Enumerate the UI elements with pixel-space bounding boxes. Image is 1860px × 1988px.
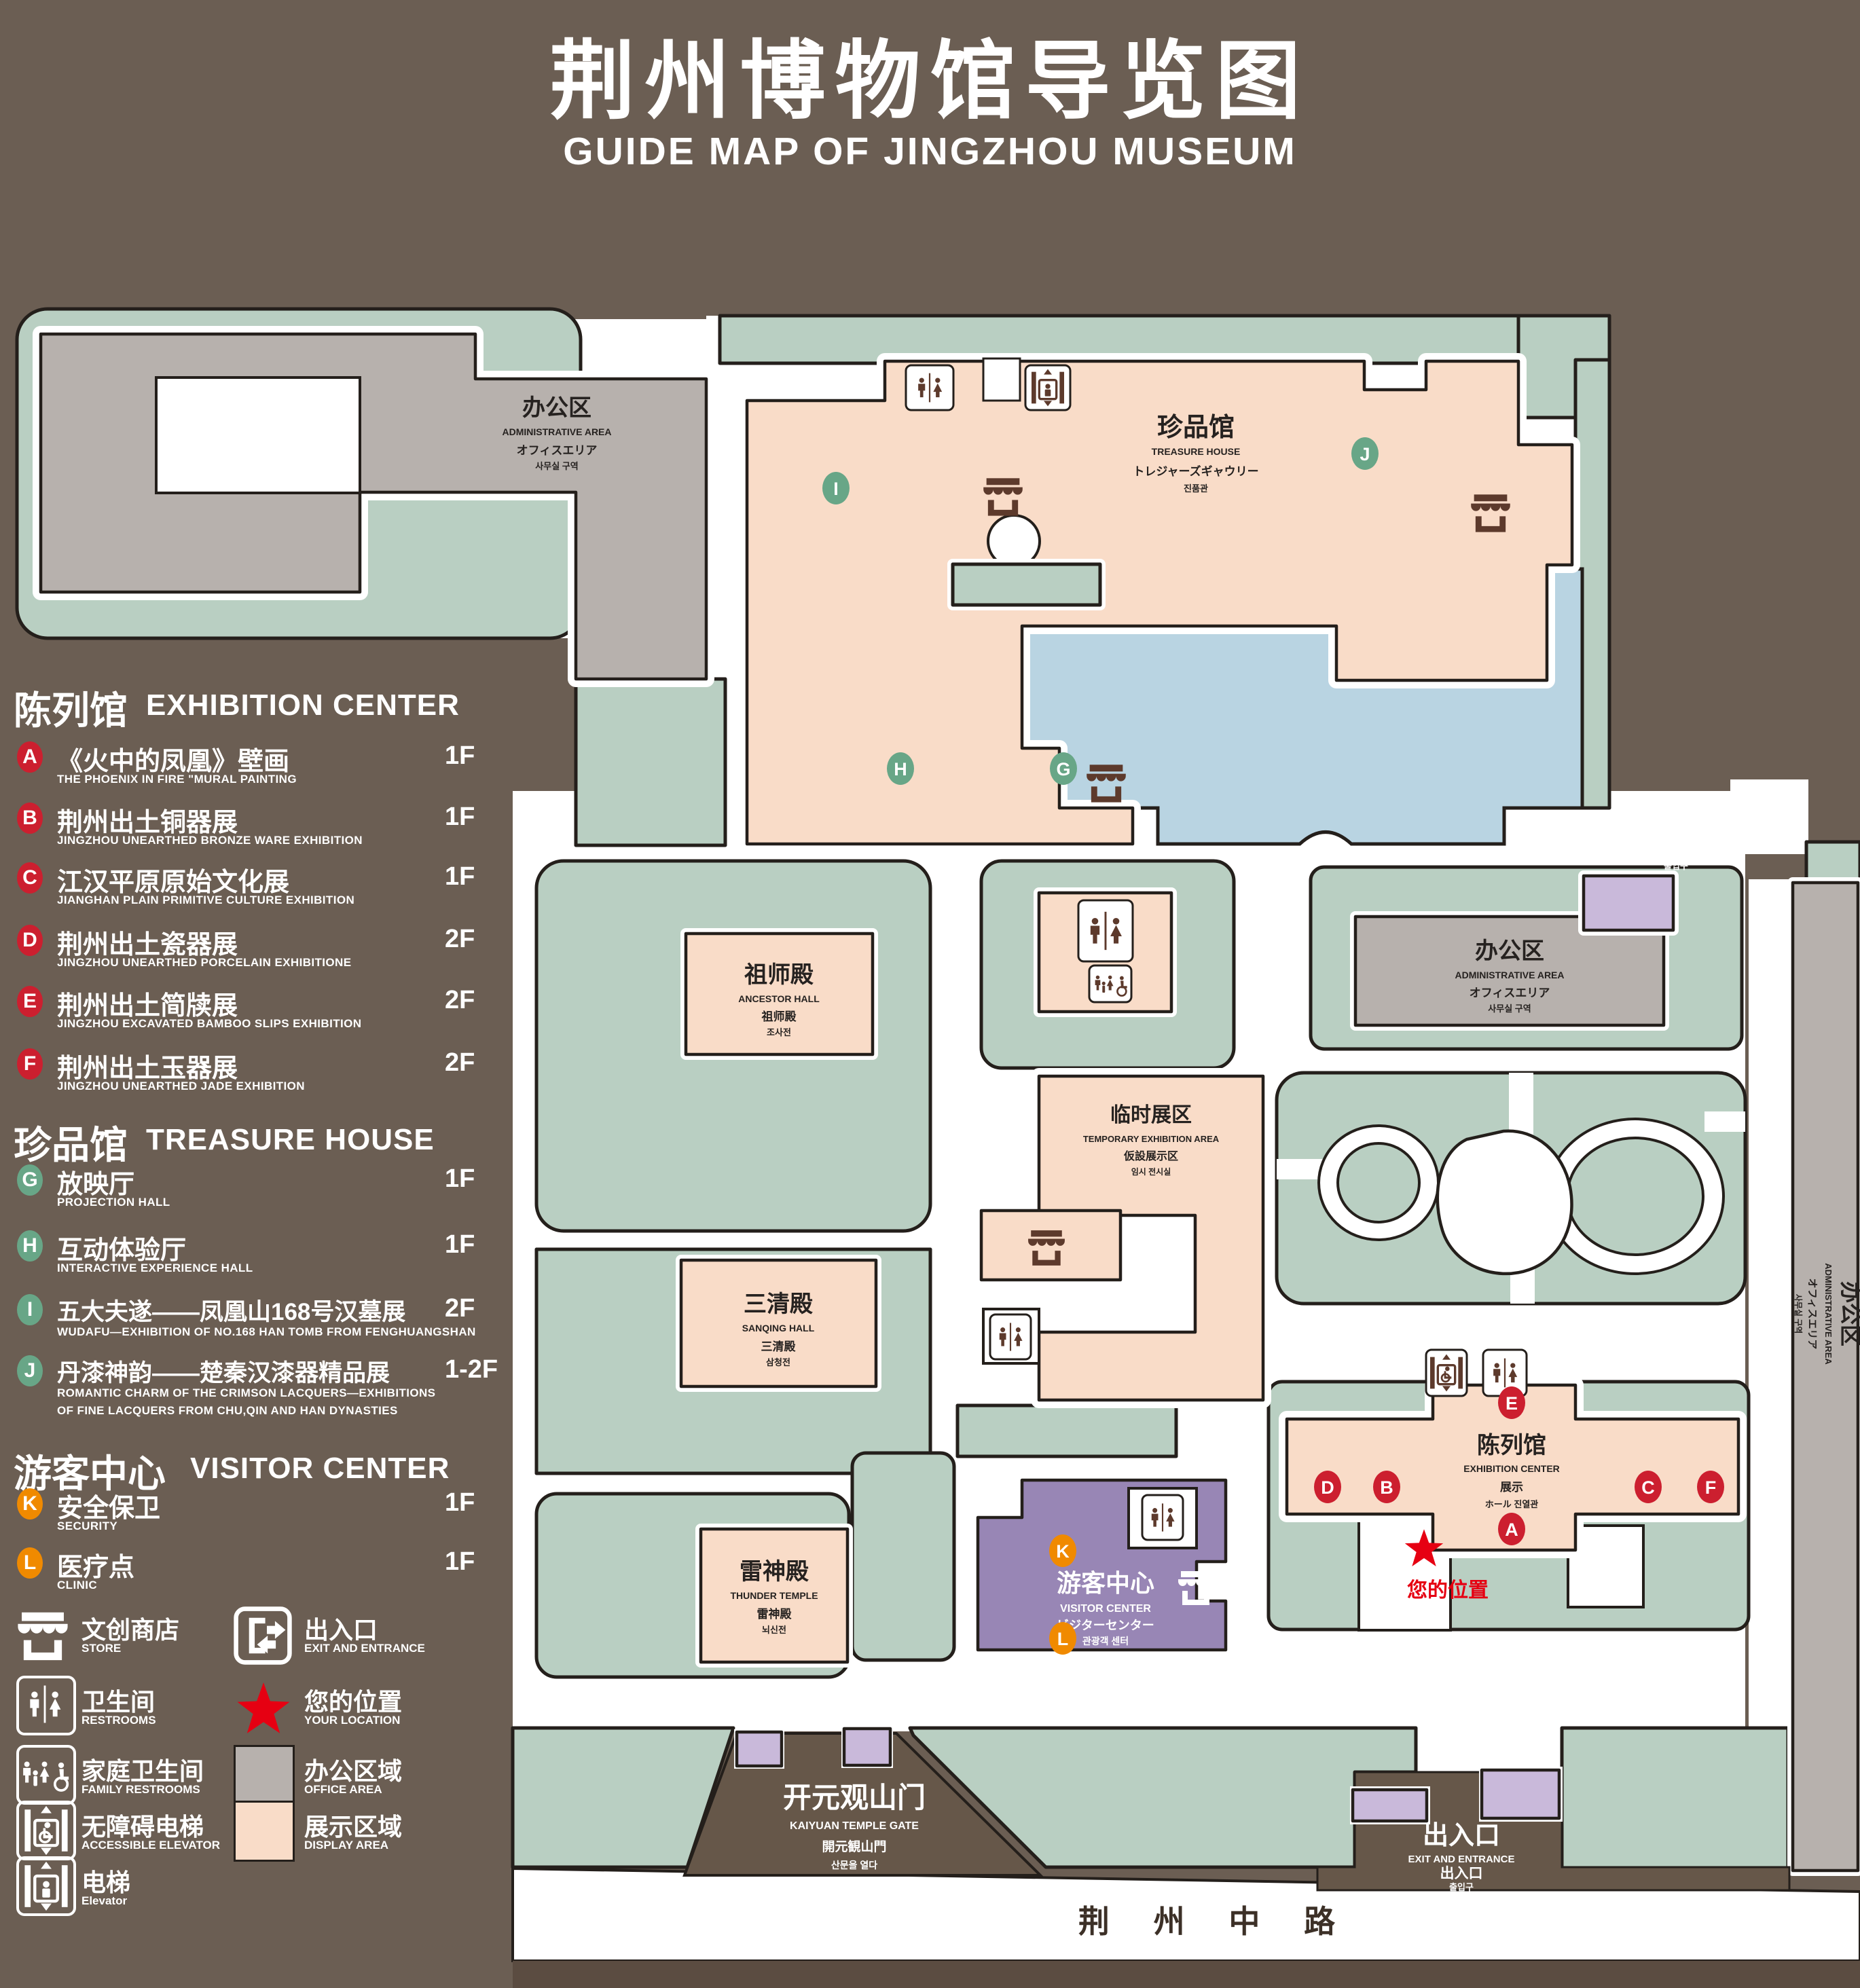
marker-l: L (1049, 1622, 1076, 1655)
legend-item-l: L 医疗点 CLINIC 1F (0, 1547, 503, 1606)
restroom-icon (1078, 900, 1133, 961)
marker-a: A (1498, 1513, 1525, 1545)
legend-item-j: J 丹漆神韵——楚秦汉漆器精品展 ROMANTIC CHARM OF THE C… (0, 1355, 503, 1414)
svg-text:游客中心: 游客中心 (1057, 1569, 1154, 1597)
your-location-legend-icon (236, 1682, 291, 1734)
guide-map-page: 荆州博物馆导览图 GUIDE MAP OF JINGZHOU MUSEUM (0, 0, 1860, 1988)
svg-text:仮設展示区: 仮設展示区 (1123, 1149, 1178, 1162)
svg-text:KAIYUAN TEMPLE GATE: KAIYUAN TEMPLE GATE (790, 1820, 919, 1832)
legend-item-a: A 《火中的凤凰》壁画 THE PHOENIX IN FIRE "MURAL P… (0, 741, 503, 800)
legend-item-e: E 荆州出土简牍展 JINGZHOU EXCAVATED BAMBOO SLIP… (0, 986, 503, 1044)
marker-k: K (1049, 1534, 1076, 1567)
restrooms-legend-icon (16, 1676, 76, 1735)
svg-text:A: A (1505, 1520, 1518, 1540)
elevator-icon (1025, 365, 1070, 410)
legend-section-treasure-house: 珍品馆 (14, 1115, 128, 1170)
svg-text:オフィスエリア: オフィスエリア (1806, 1278, 1818, 1350)
svg-text:开元观山门: 开元观山门 (783, 1782, 926, 1814)
svg-text:临时展区: 临时展区 (1110, 1103, 1192, 1126)
svg-text:オフィスエリア: オフィスエリア (1470, 987, 1550, 999)
svg-text:三清殿: 三清殿 (744, 1291, 813, 1317)
svg-text:F: F (1705, 1477, 1717, 1498)
marker-e: E (1498, 1386, 1525, 1419)
restroom-icon (1142, 1495, 1183, 1540)
svg-text:K: K (1056, 1541, 1070, 1562)
svg-text:출입구: 출입구 (1664, 861, 1688, 871)
svg-text:出入口: 出入口 (1440, 1866, 1483, 1881)
sanqing-hall: 三清殿 SANQING HALL 三清殿 삼청전 (681, 1260, 876, 1386)
svg-text:D: D (1321, 1477, 1334, 1498)
svg-text:출입구: 출입구 (1449, 1882, 1474, 1892)
svg-text:사무실 구역: 사무실 구역 (1793, 1294, 1804, 1334)
svg-text:雷神殿: 雷神殿 (757, 1607, 792, 1621)
svg-text:관광객 센터: 관광객 센터 (1082, 1636, 1129, 1646)
svg-text:THUNDER TEMPLE: THUNDER TEMPLE (730, 1590, 818, 1601)
family-restroom-icon (1089, 965, 1131, 1002)
accessible-elevator-legend-icon (16, 1801, 76, 1860)
svg-text:TREASURE HOUSE: TREASURE HOUSE (1152, 446, 1241, 457)
svg-text:祖师殿: 祖师殿 (744, 962, 814, 988)
marker-f: F (1697, 1471, 1724, 1503)
svg-text:办公区: 办公区 (1475, 938, 1544, 964)
svg-text:办公区: 办公区 (1838, 1281, 1860, 1346)
marker-d: D (1314, 1471, 1341, 1503)
svg-text:EXIT AND ENTRANCE: EXIT AND ENTRANCE (1408, 1854, 1515, 1865)
svg-text:您的位置: 您的位置 (1407, 1579, 1489, 1602)
svg-text:展示: 展示 (1500, 1481, 1523, 1494)
svg-text:オフィスエリア: オフィスエリア (517, 444, 598, 457)
svg-text:삼청전: 삼청전 (766, 1357, 790, 1367)
display-area-legend-swatch (234, 1801, 295, 1862)
family-restrooms-legend-icon (16, 1745, 76, 1805)
svg-text:珍品馆: 珍品馆 (1157, 413, 1235, 442)
legend-item-c: C 江汉平原原始文化展 JIANGHAN PLAIN PRIMITIVE CUL… (0, 862, 503, 921)
svg-text:三清殿: 三清殿 (761, 1340, 797, 1353)
legend-item-i: I 五大夫遂——凤凰山168号汉墓展 WUDAFU—EXHIBITION OF … (0, 1294, 503, 1352)
svg-text:EXHIBITION CENTER: EXHIBITION CENTER (1463, 1463, 1560, 1474)
svg-text:ANCESTOR HALL: ANCESTOR HALL (738, 993, 820, 1004)
marker-h: H (887, 752, 914, 785)
legend-item-b: B 荆州出土铜器展 JINGZHOU UNEARTHED BRONZE WARE… (0, 803, 503, 861)
svg-text:B: B (1380, 1477, 1393, 1498)
legend-item-f: F 荆州出土玉器展 JINGZHOU UNEARTHED JADE EXHIBI… (0, 1048, 503, 1107)
svg-text:办公区: 办公区 (522, 395, 591, 421)
svg-text:사무실 구역: 사무실 구역 (535, 461, 578, 471)
legend-item-h: H 互动体验厅 INTERACTIVE EXPERIENCE HALL 1F (0, 1230, 503, 1289)
marker-c: C (1635, 1471, 1662, 1503)
svg-text:TEMPORARY EXHIBITION AREA: TEMPORARY EXHIBITION AREA (1083, 1134, 1220, 1144)
svg-text:G: G (1056, 759, 1070, 779)
svg-text:사무실 구역: 사무실 구역 (1488, 1004, 1531, 1014)
svg-text:出入口: 出入口 (1655, 842, 1698, 858)
svg-text:조사전: 조사전 (767, 1027, 791, 1037)
road-south-band (513, 1961, 1860, 1988)
svg-text:H: H (894, 759, 907, 779)
accessible-elevator-icon (1426, 1350, 1467, 1396)
store-legend-icon (15, 1610, 71, 1662)
svg-text:ADMINISTRATIVE AREA: ADMINISTRATIVE AREA (503, 426, 612, 437)
svg-text:L: L (1057, 1629, 1069, 1649)
svg-text:出入口: 出入口 (1423, 1822, 1500, 1850)
legend-item-d: D 荆州出土瓷器展 JINGZHOU UNEARTHED PORCELAIN E… (0, 925, 503, 983)
svg-text:EXIT AND ENTRANCE: EXIT AND ENTRANCE (1623, 826, 1730, 838)
svg-text:ADMINISTRATIVE AREA: ADMINISTRATIVE AREA (1455, 970, 1565, 980)
marker-g: G (1050, 752, 1077, 785)
svg-text:開元観山門: 開元観山門 (822, 1839, 886, 1854)
svg-text:임시 전시실: 임시 전시실 (1131, 1166, 1171, 1177)
exit-legend-icon (234, 1606, 292, 1665)
svg-text:雷神殿: 雷神殿 (740, 1559, 809, 1585)
marker-b: B (1373, 1471, 1400, 1503)
ancestor-hall: 祖师殿 ANCESTOR HALL 祖师殿 조사전 (686, 934, 873, 1054)
svg-text:ホール 진열관: ホール 진열관 (1485, 1499, 1539, 1509)
legend-item-g: G 放映厅 PROJECTION HALL 1F (0, 1164, 503, 1223)
office-area-legend-swatch (234, 1745, 295, 1806)
restroom-icon (906, 365, 953, 410)
pond (1438, 1131, 1572, 1274)
svg-text:VISITOR CENTER: VISITOR CENTER (1060, 1603, 1151, 1615)
svg-text:祖师殿: 祖师殿 (761, 1010, 797, 1023)
restroom-icon (990, 1314, 1031, 1359)
svg-text:뇌신전: 뇌신전 (762, 1625, 786, 1635)
svg-text:산문을 열다: 산문을 열다 (831, 1860, 877, 1871)
svg-text:SANQING HALL: SANQING HALL (742, 1323, 815, 1333)
thunder-temple: 雷神殿 THUNDER TEMPLE 雷神殿 뇌신전 (701, 1529, 847, 1662)
legend-item-k: K 安全保卫 SECURITY 1F (0, 1488, 503, 1547)
marker-i: I (822, 472, 850, 504)
svg-text:C: C (1641, 1477, 1655, 1498)
svg-text:진품관: 진품관 (1184, 483, 1208, 494)
road-name: 荆 州 中 路 (1078, 1904, 1353, 1939)
marker-j: J (1351, 437, 1379, 470)
visitor-center: 游客中心 VISITOR CENTER ビジターセンター 관광객 센터 (978, 1480, 1226, 1650)
elevator-legend-icon (16, 1856, 76, 1916)
svg-text:J: J (1360, 444, 1370, 464)
svg-text:ADMINISTRATIVE AREA: ADMINISTRATIVE AREA (1823, 1263, 1834, 1365)
administrative-area-right: 办公区 ADMINISTRATIVE AREA オフィスエリア 사무실 구역 (1793, 883, 1860, 1871)
svg-text:トレジャーズギャウリー: トレジャーズギャウリー (1133, 464, 1258, 478)
svg-text:陈列馆: 陈列馆 (1477, 1433, 1546, 1458)
legend-section-exhibition-center: 陈列馆 (14, 680, 128, 735)
svg-text:出入口: 出入口 (1637, 792, 1715, 821)
svg-text:I: I (833, 479, 839, 499)
svg-text:E: E (1506, 1393, 1518, 1414)
